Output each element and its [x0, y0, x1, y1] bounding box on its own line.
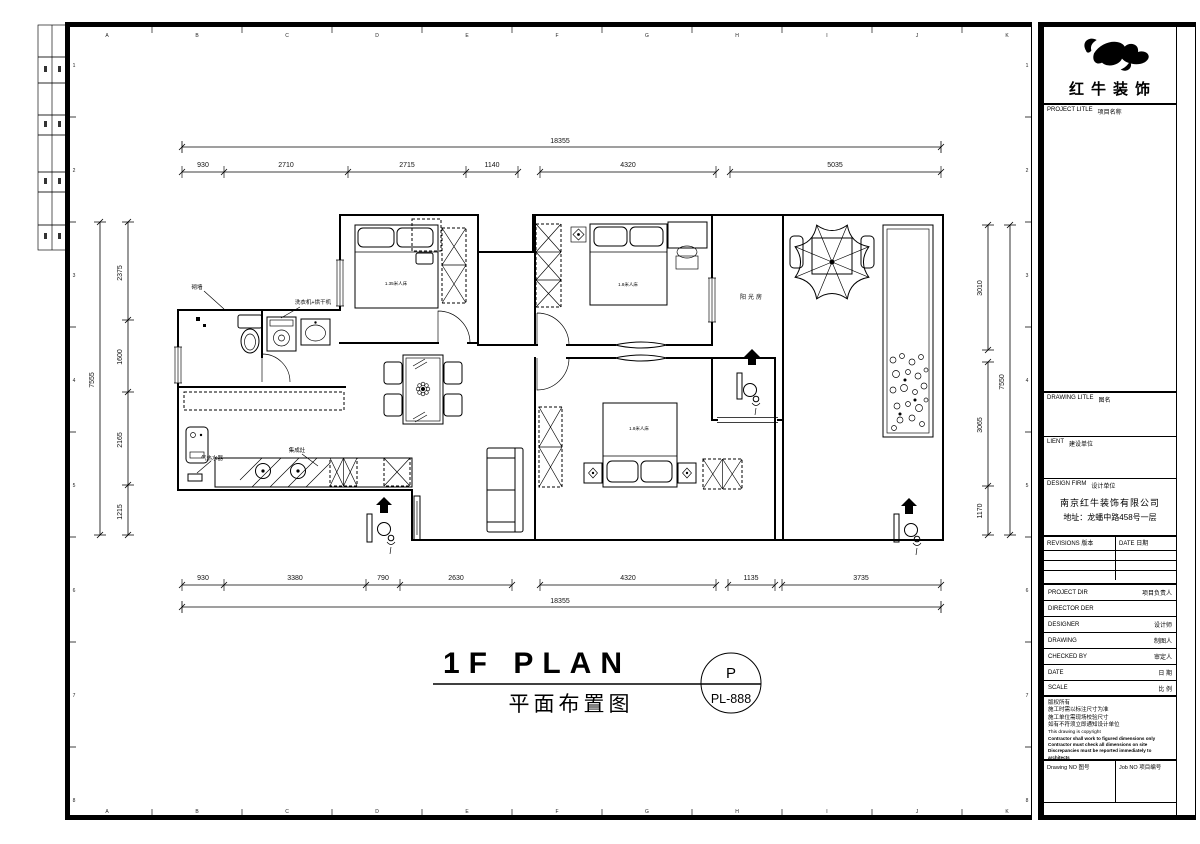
dim-value: 2630: [448, 575, 464, 582]
grid-letter: E: [465, 33, 469, 39]
grid-letter: D: [375, 33, 379, 39]
label-stove: 集成灶: [289, 446, 306, 454]
drawing-title-section: DRAWING LITLE 图名: [1044, 393, 1176, 437]
project-title-label-en: PROJECT LITLE: [1047, 107, 1093, 116]
title-block-margin: [1177, 27, 1195, 815]
dim-value: 3010: [977, 280, 984, 296]
grid-number: 3: [73, 273, 76, 279]
revisions-label-en: REVISIONS: [1047, 541, 1080, 547]
dim-value: 1170: [977, 503, 984, 518]
row-label-en: DESIGNER: [1048, 622, 1079, 628]
note-line: Discrepancies must be reported immediate…: [1048, 748, 1172, 760]
grid-number: 1: [1026, 63, 1029, 69]
row-checked-by: CHECKED BY 审定人: [1044, 649, 1176, 665]
rednow-logo-icon: [1062, 36, 1158, 76]
bedroom-1: 1.35米人床: [355, 219, 466, 308]
grid-number: 8: [1026, 798, 1029, 804]
dim-value: 4320: [620, 575, 636, 582]
row-label-en: DATE: [1048, 670, 1064, 676]
grid-number: 3: [1026, 273, 1029, 279]
grid-letter: J: [916, 809, 919, 815]
plan-title-en: 1F PLAN: [443, 647, 631, 680]
door-swings: [262, 311, 569, 390]
grid-number: 6: [73, 588, 76, 594]
grid-letter: K: [1005, 809, 1009, 815]
row-label-en: SCALE: [1048, 685, 1068, 691]
row-label-en: PROJECT DIR: [1048, 590, 1088, 596]
dim-top: 18355 930 2710 2715 1140 4320 5035: [179, 138, 944, 178]
dim-right: 3010 3065 1170 7550: [977, 222, 1016, 538]
dim-value: 4320: [620, 162, 636, 169]
master-bedroom: 1.8米人床: [536, 222, 707, 307]
client-label-zh: 建设单位: [1069, 439, 1093, 448]
dining-area: [384, 355, 462, 424]
figure-at-entry: [367, 373, 921, 555]
grid-number: 4: [73, 378, 76, 384]
dim-value: 5035: [827, 162, 843, 169]
grid-letter: C: [285, 809, 289, 815]
label-build-wall: 砌墙: [191, 283, 203, 291]
table-flower-icon: [416, 382, 430, 396]
dim-value: 1140: [484, 162, 499, 169]
dim-total-top: 18355: [550, 138, 570, 145]
dim-value: 1600: [117, 349, 124, 365]
sheet-code: PL-888: [711, 692, 751, 706]
revisions-label-zh: 版本: [1081, 541, 1093, 547]
grid-letter: K: [1005, 33, 1009, 39]
grid-number: 1: [73, 63, 76, 69]
dim-value: 930: [197, 575, 209, 582]
grid-letter: F: [555, 809, 558, 815]
grid-number: 5: [73, 483, 76, 489]
sheet-letter: P: [726, 665, 736, 682]
job-no-label-en: Job NO: [1119, 765, 1138, 771]
label-water-heater: 气热水器: [201, 454, 224, 462]
grid-letter: B: [195, 809, 199, 815]
grid-letter: A: [105, 33, 109, 39]
title-block: 红牛装饰 PROJECT LITLE 项目名称 DRAWING LITLE 图名…: [1038, 22, 1196, 820]
row-label-zh: 日 期: [1158, 668, 1172, 677]
grid-number: 2: [1026, 168, 1029, 174]
dim-total-right: 7550: [999, 374, 1006, 390]
grid-letter: I: [826, 809, 827, 815]
row-label-zh: 制图人: [1154, 636, 1172, 645]
label-bed-second: 1.8米人床: [629, 425, 649, 432]
grid-letter: D: [375, 809, 379, 815]
design-firm-label-en: DESIGN FIRM: [1047, 481, 1086, 490]
note-line: 施工时需以标注尺寸为准: [1048, 707, 1172, 714]
dim-value: 1215: [117, 504, 124, 520]
grid-letter: A: [105, 809, 109, 815]
note-line: 如有不符须立即通知设计单位: [1048, 722, 1172, 729]
dim-value: 930: [197, 162, 209, 169]
grid-number: 7: [1026, 693, 1029, 699]
grid-letter: G: [645, 33, 649, 39]
row-label-zh: 审定人: [1154, 652, 1172, 661]
row-label-en: CHECKED BY: [1048, 654, 1087, 660]
row-label-en: DRAWING: [1048, 638, 1077, 644]
terrace: [790, 225, 874, 299]
drawing-title-label-en: DRAWING LITLE: [1047, 395, 1093, 404]
row-date: DATE 日 期: [1044, 665, 1176, 681]
design-firm-section: DESIGN FIRM 设计单位 南京红牛装饰有限公司 地址：龙蟠中路458号一…: [1044, 479, 1176, 537]
project-title-label-zh: 项目名称: [1098, 107, 1122, 116]
dim-total-bottom: 18355: [550, 598, 570, 605]
drawing-title-label-zh: 图名: [1098, 395, 1110, 404]
plan-title: 1F PLAN 平面布置图 P PL-888: [433, 647, 761, 716]
grid-letter: B: [195, 33, 199, 39]
label-sunroom: 阳光房: [740, 293, 764, 301]
row-label-en: DIRECTOR DER: [1048, 606, 1094, 612]
dim-bottom: 930 3380 790 2630 4320 1135 3735 18355: [179, 575, 944, 613]
revisions-table: REVISIONS 版本 DATE 日期: [1044, 537, 1176, 585]
dim-value: 2710: [278, 162, 294, 169]
firm-name: 南京红牛装饰有限公司: [1044, 496, 1176, 509]
client-label-en: LIENT: [1047, 439, 1064, 448]
plants-icon: [890, 354, 928, 431]
label-bed-master: 1.8米人床: [618, 281, 638, 288]
grid-number: 7: [73, 693, 76, 699]
date-col-label-zh: 日期: [1136, 541, 1148, 547]
window-symbols: [174, 260, 778, 423]
drawing-sheet: A B C D E F G H I J K A B C D E F G H I …: [0, 0, 1200, 844]
dim-value: 790: [377, 575, 389, 582]
grid-number: 4: [1026, 378, 1029, 384]
brand-header: 红牛装饰: [1044, 27, 1176, 105]
grid-letter: F: [555, 33, 558, 39]
dim-value: 2165: [117, 432, 124, 448]
grid-number: 8: [73, 798, 76, 804]
row-drawing: DRAWING 制图人: [1044, 633, 1176, 649]
grid-letter: I: [826, 33, 827, 39]
drawing-no-label-en: Drawing NO: [1047, 765, 1077, 771]
sunroom: 阳光房: [740, 293, 764, 301]
revision-row: [1044, 551, 1176, 561]
dim-value: 2375: [117, 265, 124, 281]
entry-markers: [367, 349, 921, 555]
label-washer-dryer: 洗衣机+烘干机: [295, 298, 332, 306]
dim-value: 2715: [399, 162, 415, 169]
revision-row: [1044, 561, 1176, 571]
dim-total-left: 7555: [89, 372, 96, 388]
dim-value: 1135: [743, 575, 758, 582]
revision-row: [1044, 571, 1176, 580]
grid-letter: J: [916, 33, 919, 39]
row-label-zh: 项目负责人: [1142, 588, 1172, 597]
entry-arrow-icon: [376, 349, 917, 514]
dim-value: 3735: [853, 575, 869, 582]
dim-value: 3380: [287, 575, 303, 582]
dim-value: 3065: [977, 417, 984, 433]
row-label-zh: 比 例: [1158, 684, 1172, 693]
client-section: LIENT 建设单位: [1044, 437, 1176, 479]
firm-address: 地址：龙蟠中路458号一层: [1044, 512, 1176, 523]
grid-number: 6: [1026, 588, 1029, 594]
grid-number: 5: [1026, 483, 1029, 489]
label-bed-small: 1.35米人床: [385, 280, 408, 287]
drawing-no-label-zh: 图号: [1078, 765, 1089, 771]
living-area: [414, 448, 523, 540]
project-title-section: PROJECT LITLE 项目名称: [1044, 105, 1176, 393]
planter: [883, 225, 933, 437]
row-label-zh: 设计师: [1154, 620, 1172, 629]
date-col-label-en: DATE: [1119, 541, 1135, 547]
numbers-section: Drawing NO 图号 Job NO 项目编号: [1044, 761, 1176, 803]
grid-letter: E: [465, 809, 469, 815]
plan-title-zh: 平面布置图: [509, 693, 634, 716]
row-director: DIRECTOR DER: [1044, 601, 1176, 617]
kitchen: 气热水器 集成灶: [184, 392, 412, 487]
grid-letter: H: [735, 809, 739, 815]
row-scale: SCALE 比 例: [1044, 681, 1176, 697]
grid-letter: C: [285, 33, 289, 39]
row-designer: DESIGNER 设计师: [1044, 617, 1176, 633]
nightstand: [584, 463, 696, 483]
design-firm-label-zh: 设计单位: [1091, 481, 1115, 490]
floor-plan: 洗衣机+烘干机 砌墙 气热水器 集成灶: [174, 215, 943, 555]
row-project-dir: PROJECT DIR 项目负责人: [1044, 585, 1176, 601]
grid-number: 2: [73, 168, 76, 174]
grid-letter: H: [735, 33, 739, 39]
fold-strip: [38, 25, 66, 250]
brand-name: 红牛装饰: [1069, 78, 1157, 99]
plan-canvas: A B C D E F G H I J K A B C D E F G H I …: [0, 0, 1200, 844]
grid-letter: G: [645, 809, 649, 815]
copyright-notes: 版权所有 施工时需以标注尺寸为准 施工单位需现场校验尺寸 如有不符须立即通知设计…: [1044, 697, 1176, 761]
ceiling-fan-icon: [571, 227, 586, 242]
dim-left: 2375 1600 2165 1215 7555: [89, 219, 134, 538]
job-no-label-zh: 项目编号: [1139, 765, 1161, 771]
